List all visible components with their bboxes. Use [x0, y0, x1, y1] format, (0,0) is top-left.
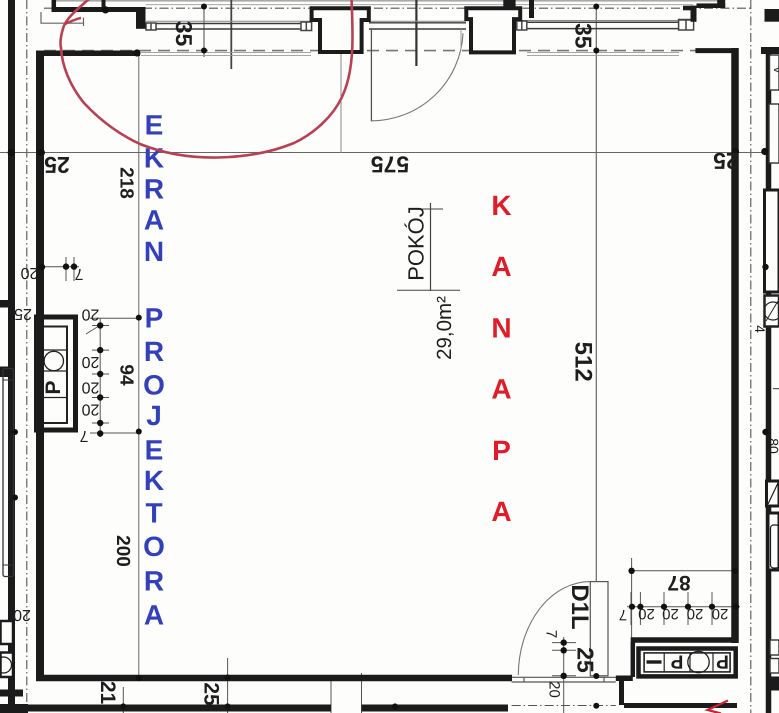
svg-text:P: P — [670, 650, 683, 671]
svg-text:25: 25 — [713, 148, 739, 174]
svg-text:N: N — [144, 236, 164, 267]
svg-text:E: E — [145, 109, 164, 140]
svg-text:25: 25 — [200, 682, 223, 706]
svg-text:POKÓJ: POKÓJ — [404, 206, 429, 281]
svg-text:P: P — [42, 380, 65, 394]
svg-text:O: O — [143, 531, 165, 562]
svg-text:R: R — [144, 173, 164, 204]
svg-text:P: P — [716, 650, 729, 671]
svg-text:20: 20 — [82, 306, 100, 323]
svg-text:D1L: D1L — [566, 584, 593, 629]
svg-text:20: 20 — [13, 606, 31, 623]
svg-text:P: P — [492, 435, 511, 466]
svg-text:25: 25 — [14, 305, 32, 322]
svg-text:P: P — [145, 303, 164, 334]
svg-text:v: v — [771, 67, 779, 74]
svg-text:T: T — [145, 497, 162, 528]
svg-text:E: E — [145, 435, 164, 466]
svg-text:35: 35 — [171, 21, 197, 47]
svg-text:O: O — [143, 370, 165, 401]
svg-text:A: A — [144, 204, 164, 235]
svg-text:20: 20 — [82, 379, 100, 396]
svg-text:200: 200 — [112, 535, 133, 567]
svg-text:25: 25 — [573, 647, 599, 673]
svg-text:21: 21 — [96, 681, 119, 705]
svg-text:R: R — [144, 566, 164, 597]
svg-text:N: N — [491, 312, 511, 343]
svg-text:K: K — [144, 465, 164, 496]
svg-text:94: 94 — [116, 364, 137, 386]
svg-text:20: 20 — [687, 605, 704, 622]
svg-text:20: 20 — [545, 681, 562, 698]
svg-text:20: 20 — [638, 605, 655, 622]
svg-text:4: 4 — [752, 325, 768, 333]
svg-text:29,0m²: 29,0m² — [433, 296, 456, 360]
svg-text:A: A — [491, 251, 511, 282]
svg-text:K: K — [491, 190, 511, 221]
svg-text:20: 20 — [82, 353, 100, 370]
svg-text:20: 20 — [712, 605, 729, 622]
svg-text:A: A — [144, 599, 164, 630]
svg-text:20: 20 — [21, 264, 39, 281]
svg-text:7: 7 — [79, 427, 88, 444]
svg-text:R: R — [144, 336, 164, 367]
svg-text:20: 20 — [662, 605, 679, 622]
svg-text:575: 575 — [371, 152, 410, 178]
svg-text:7: 7 — [543, 630, 560, 638]
svg-text:7: 7 — [74, 265, 83, 282]
svg-text:J: J — [146, 400, 162, 431]
svg-text:25: 25 — [44, 152, 70, 178]
svg-text:A: A — [491, 374, 511, 405]
svg-text:512: 512 — [570, 342, 597, 382]
svg-text:87: 87 — [667, 571, 690, 594]
svg-text:35: 35 — [571, 23, 597, 49]
svg-text:A: A — [491, 496, 511, 527]
svg-text:20: 20 — [82, 401, 100, 418]
svg-text:80: 80 — [766, 438, 779, 454]
svg-text:218: 218 — [115, 167, 136, 199]
svg-text:7: 7 — [619, 606, 627, 623]
